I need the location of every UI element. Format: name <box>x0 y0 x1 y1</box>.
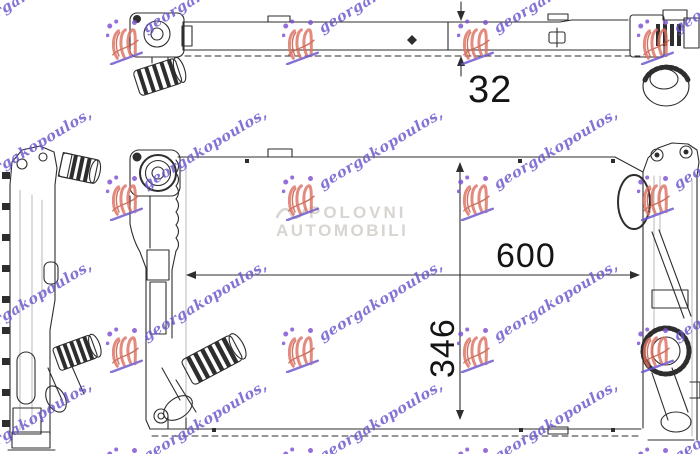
front-view-right-tank <box>618 143 700 440</box>
top-view-left-fitting <box>130 13 192 96</box>
top-view: 32 <box>130 2 699 111</box>
dimension-height: 346 <box>424 162 464 420</box>
dimension-depth: 32 <box>457 2 512 111</box>
dimension-width: 600 <box>186 237 640 279</box>
radiator-cap <box>643 66 689 106</box>
top-view-right-fitting <box>630 10 699 106</box>
radiator-technical-drawing: POLOVNI AUTOMOBILI <box>0 0 700 454</box>
front-view: 600 346 <box>130 143 700 440</box>
detached-hose-connector <box>58 153 102 185</box>
front-view-left-tank <box>130 150 249 429</box>
side-view-lower-hose <box>52 333 103 371</box>
dimension-width-label: 600 <box>496 237 556 275</box>
filler-cap <box>643 328 689 374</box>
dimension-depth-label: 32 <box>468 69 512 111</box>
lower-hose-connection <box>181 331 250 385</box>
radiator-drawing: 32 <box>0 0 700 454</box>
dimension-height-label: 346 <box>424 318 462 378</box>
side-view <box>2 146 104 450</box>
